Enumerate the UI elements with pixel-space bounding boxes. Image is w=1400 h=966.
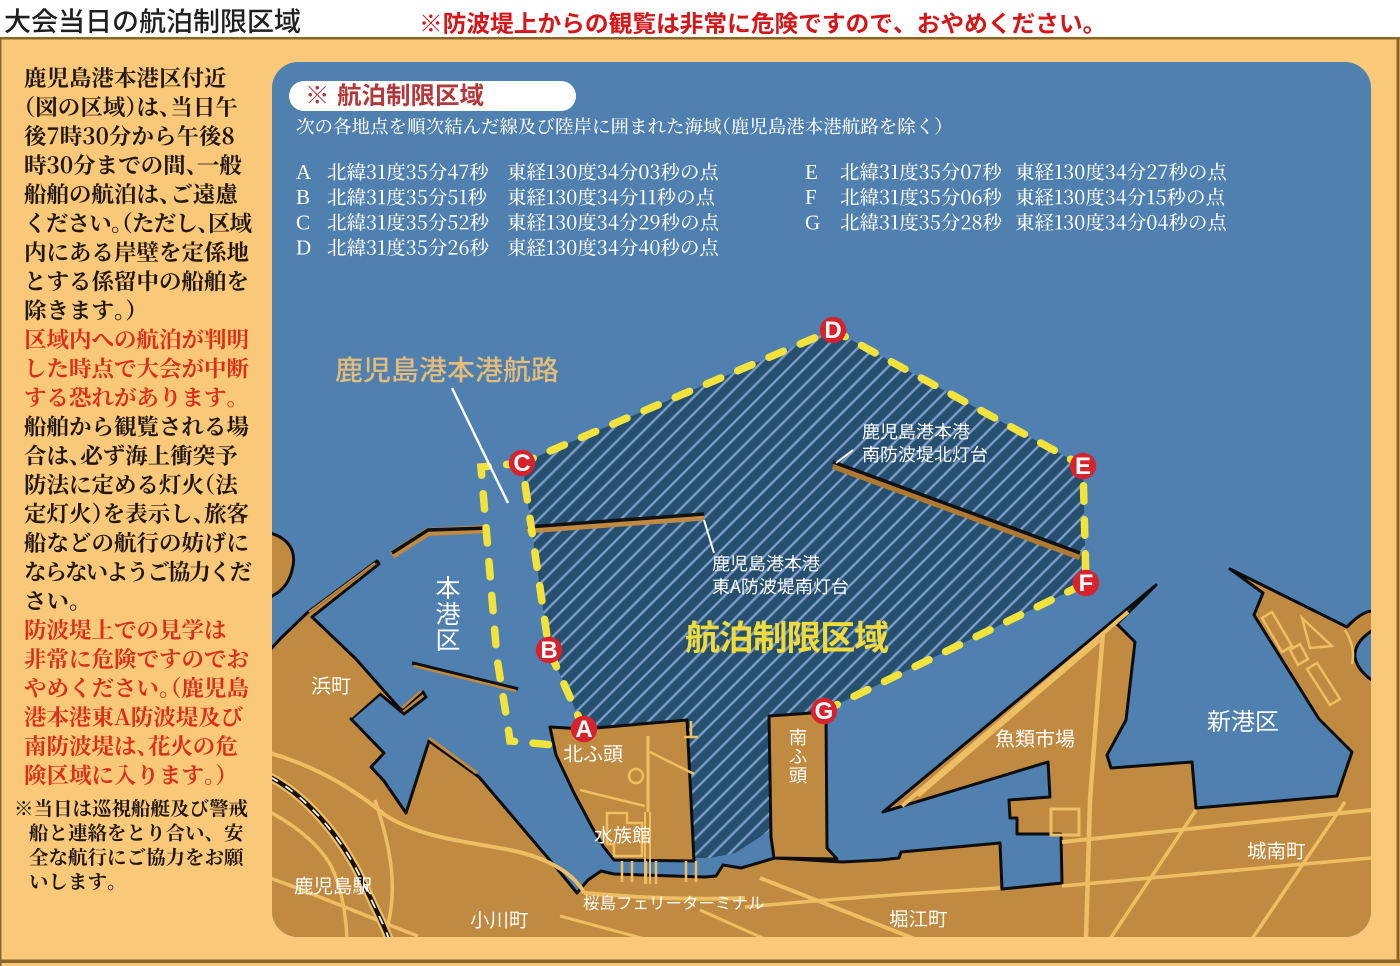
svg-text:F: F bbox=[1079, 570, 1094, 597]
svg-text:D: D bbox=[824, 317, 841, 344]
svg-text:F: F bbox=[805, 185, 817, 209]
svg-text:G: G bbox=[805, 210, 820, 234]
svg-text:C: C bbox=[296, 210, 310, 234]
svg-text:B: B bbox=[296, 185, 310, 209]
svg-text:A: A bbox=[575, 716, 592, 743]
svg-text:E: E bbox=[1075, 453, 1091, 480]
svg-text:G: G bbox=[815, 698, 834, 725]
svg-text:A: A bbox=[296, 160, 312, 184]
svg-text:E: E bbox=[805, 160, 818, 184]
svg-text:D: D bbox=[296, 236, 311, 260]
svg-text:B: B bbox=[540, 637, 557, 664]
svg-text:C: C bbox=[513, 450, 530, 477]
